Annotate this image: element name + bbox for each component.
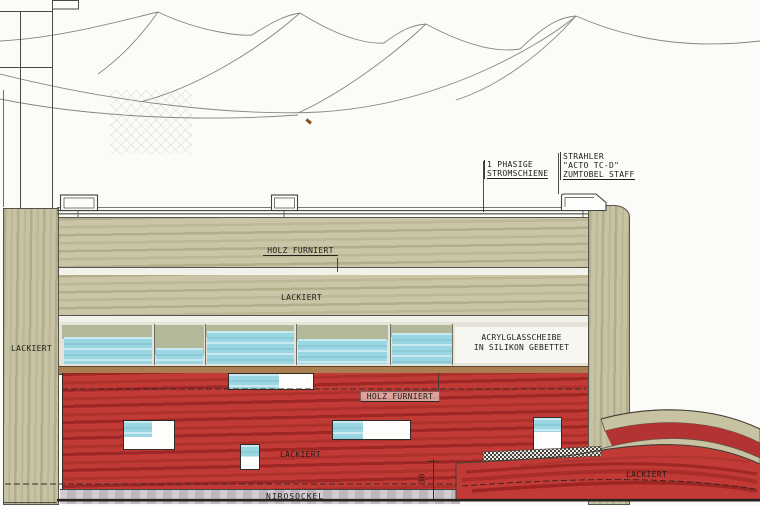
cable-drop-4 [456, 16, 576, 100]
cable-drop-2 [140, 13, 300, 102]
post-top-bracket [53, 1, 79, 10]
label-spotlight-line3: ZUMTOBEL STAFF [563, 170, 635, 180]
cable-drop-1 [98, 12, 158, 74]
elevation-drawing: 1 PHASIGE STROMSCHIENE STRAHLER "ACTO TC… [0, 0, 760, 506]
cable-ridge-line [0, 12, 760, 50]
power-track-rail [57, 208, 588, 218]
label-veneer-upper: HOLZ FURNIERT [263, 246, 338, 256]
label-lacquer-lower: LACKIERT [280, 450, 321, 459]
label-spotlight-line2: "ACTO TC-D" [563, 161, 635, 170]
label-glass-line2: IN SILIKON GEBETTET [455, 343, 588, 353]
cable-drop-3 [298, 24, 426, 113]
scan-speck [305, 118, 312, 124]
label-power-track-line1: 1 PHASIGE [487, 160, 548, 169]
linework-overlay [0, 0, 760, 506]
cable-long-sag-1 [0, 16, 576, 113]
label-power-track-line2: STROMSCHIENE [487, 169, 548, 179]
curved-wall [456, 410, 760, 500]
label-spotlight-line1: STRAHLER [563, 152, 635, 161]
label-lacquer-left-column: LACKIERT [11, 344, 52, 353]
label-lacquer-upper: LACKIERT [281, 293, 322, 302]
spotlights [61, 194, 607, 211]
label-spotlight: STRAHLER "ACTO TC-D" ZUMTOBEL STAFF [560, 152, 635, 180]
label-glass-line1: ACRYLGLASSCHEIBE [455, 333, 588, 343]
label-lacquer-curved-wall: LACKIERT [626, 470, 667, 479]
left-post [0, 1, 79, 210]
spotlight-3 [562, 194, 607, 211]
label-dimension-30: 30 [418, 473, 427, 483]
label-power-track: 1 PHASIGE STROMSCHIENE [484, 160, 548, 179]
glass-mullions [155, 324, 453, 365]
label-nirosockel: NIROSOCKEL [266, 492, 324, 501]
cable-long-sag-2 [0, 99, 298, 118]
label-veneer-lower: HOLZ FURNIERT [360, 391, 440, 402]
dimension-30-line [428, 459, 439, 499]
label-glass-box: ACRYLGLASSCHEIBE IN SILIKON GEBETTET [455, 327, 588, 363]
cable-sketch-lines [0, 12, 760, 118]
